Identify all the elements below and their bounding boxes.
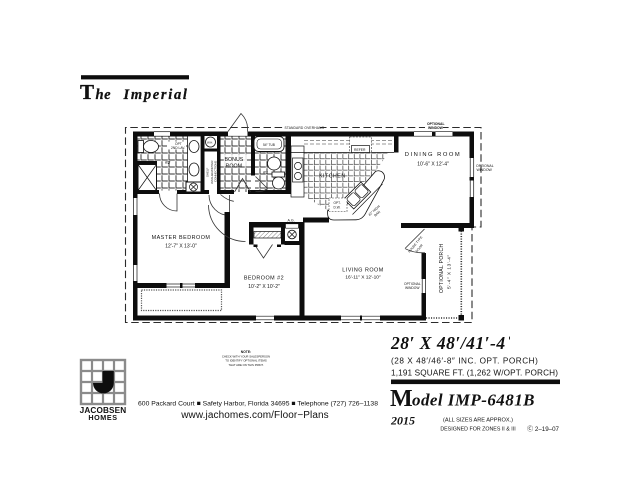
svg-text:1,191 SQUARE FT. (1,262 W/OPT.: 1,191 SQUARE FT. (1,262 W/OPT. PORCH) [391,369,558,378]
svg-text:A.G.: A.G. [288,219,295,223]
svg-text:2ND LAV.: 2ND LAV. [171,146,185,150]
svg-text:OPTIONAL PORCH: OPTIONAL PORCH [439,244,445,293]
svg-text:CONNECTIONS: CONNECTIONS [214,161,218,182]
svg-text:10′-6″ X 12′-4″: 10′-6″ X 12′-4″ [417,162,449,168]
svg-text:odel IMP-6481B: odel IMP-6481B [412,391,535,410]
svg-text:DINING ROOM: DINING ROOM [405,152,461,158]
svg-text:LIVING ROOM: LIVING ROOM [342,268,383,274]
svg-text:WINDOW: WINDOW [405,286,420,290]
svg-text:www.jachomes.com/Floor−Plans: www.jachomes.com/Floor−Plans [180,410,329,421]
svg-text:BEDROOM #2: BEDROOM #2 [244,276,284,282]
svg-text:10′-2″ X 10′-2″: 10′-2″ X 10′-2″ [248,284,280,290]
svg-text:54″ TUB: 54″ TUB [263,143,275,147]
svg-text:KITCHEN: KITCHEN [319,174,346,180]
svg-text:T: T [80,80,94,104]
svg-text:STANDARD OVERHANG: STANDARD OVERHANG [285,126,325,130]
svg-text:600 Packard Court ■ Safety H: 600 Packard Court ■ Safety Harbor, Flori… [138,401,378,408]
svg-text:MASTER BEDROOM: MASTER BEDROOM [152,235,211,241]
svg-text:he: he [96,87,112,103]
svg-text:DESIGNED FOR ZONES II & III: DESIGNED FOR ZONES II & III [440,427,515,433]
svg-text:HOMES: HOMES [88,413,117,422]
svg-text:Ⓒ 2–19–07: Ⓒ 2–19–07 [527,425,560,433]
svg-text:BONUS: BONUS [225,157,244,163]
svg-text:Imperial: Imperial [123,87,189,103]
svg-text:12′-7″ X 13′-0″: 12′-7″ X 13′-0″ [165,244,197,250]
svg-text:NOTE:: NOTE: [241,350,252,354]
svg-text:WINDOW: WINDOW [477,168,493,172]
svg-text:SHELF: SHELF [206,167,210,177]
svg-text:ROOM: ROOM [226,164,242,170]
svg-text:REFER: REFER [354,148,366,152]
svg-text:M: M [390,386,413,412]
svg-text:THAT ARE ON THIS PRINT.: THAT ARE ON THIS PRINT. [228,363,263,367]
svg-text:W.H.: W.H. [207,141,213,145]
svg-text:OPT.: OPT. [334,201,341,205]
svg-text:(ALL SIZES ARE APPROX.): (ALL SIZES ARE APPROX.) [443,418,513,424]
svg-text:WINDOW: WINDOW [428,126,444,130]
svg-text:2015: 2015 [390,414,415,428]
svg-text:28′ X 48′/41′-4ˈ: 28′ X 48′/41′-4ˈ [390,333,512,353]
svg-text:#2: #2 [165,160,171,166]
svg-text:D.W.: D.W. [334,205,341,209]
svg-text:5′-4″ X 13′-4″: 5′-4″ X 13′-4″ [447,254,453,289]
svg-text:(28 X 48′/46′-8″ INC. OPT. POR: (28 X 48′/46′-8″ INC. OPT. PORCH) [391,357,538,366]
svg-text:16′-11″ X 12′-10″: 16′-11″ X 12′-10″ [345,274,381,280]
svg-text:#1: #1 [263,170,269,176]
